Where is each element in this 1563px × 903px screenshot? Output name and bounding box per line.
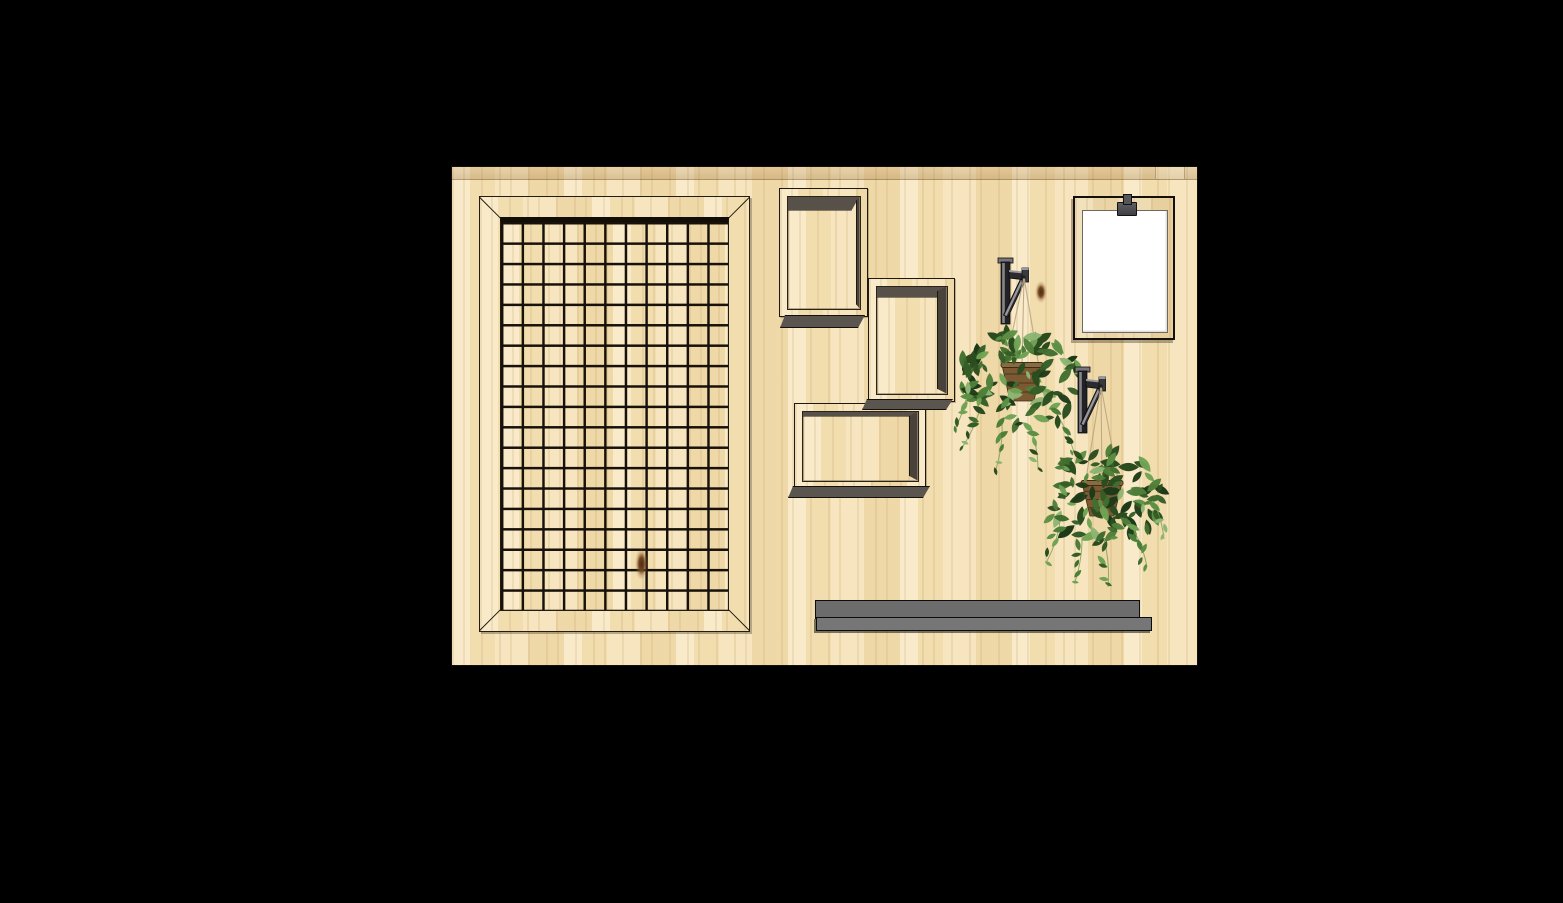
- ivy-foliage: [1042, 443, 1171, 588]
- hanging-plant-1[interactable]: [953, 258, 1083, 476]
- wood-wall-panel: [452, 167, 1197, 665]
- screenshot-root: { "scene": { "background_color": "#00000…: [0, 0, 1563, 903]
- hanging-plants-layer: [452, 167, 1197, 665]
